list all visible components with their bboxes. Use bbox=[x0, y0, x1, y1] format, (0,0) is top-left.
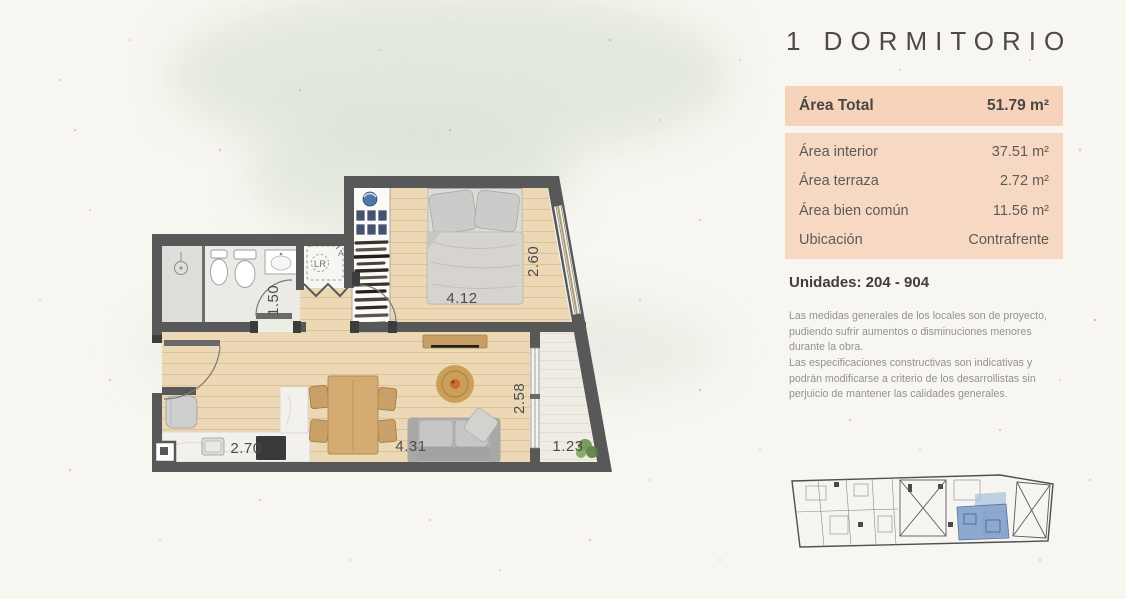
dim-living-width: 4.31 bbox=[395, 438, 426, 455]
bidet bbox=[211, 250, 228, 285]
area-row-value: Contrafrente bbox=[968, 232, 1049, 248]
area-row: Área bien común 11.56 m² bbox=[799, 203, 1049, 219]
area-row-label: Área terraza bbox=[799, 173, 879, 189]
key-plan bbox=[788, 472, 1060, 573]
area-row: Área terraza 2.72 m² bbox=[799, 173, 1049, 189]
disclaimer-text: Las medidas generales de los locales son… bbox=[789, 309, 1052, 403]
shaft-label: A bbox=[338, 248, 344, 258]
area-total-value: 51.79 m² bbox=[987, 97, 1049, 115]
disclaimer-line: Las medidas generales de los locales son… bbox=[789, 309, 1052, 356]
dim-bed-width: 4.12 bbox=[446, 290, 477, 307]
dim-living-depth: 2.58 bbox=[511, 383, 528, 414]
dim-bed-depth: 2.60 bbox=[525, 246, 542, 277]
floor-plan: LR A bbox=[138, 158, 622, 485]
dining-table bbox=[328, 376, 378, 454]
laundry-label: LR bbox=[314, 259, 326, 270]
content: 1 DORMITORIO Área Total 51.79 m² Área in… bbox=[0, 0, 1126, 599]
units-label: Unidades: 204 - 904 bbox=[789, 274, 929, 291]
bathroom-sink bbox=[265, 250, 297, 274]
terrace-sliding-door bbox=[530, 348, 540, 448]
rug bbox=[436, 365, 474, 403]
corner-shaft-box bbox=[155, 442, 175, 462]
area-total-label: Área Total bbox=[799, 97, 874, 115]
area-total-box: Área Total 51.79 m² bbox=[785, 86, 1063, 126]
toilet bbox=[234, 250, 256, 288]
kitchen-sink bbox=[202, 438, 224, 455]
shower-partition bbox=[202, 246, 205, 322]
dim-bath-width: 1.50 bbox=[265, 285, 282, 316]
hallway-floor bbox=[300, 288, 352, 332]
area-row: Área interior 37.51 m² bbox=[799, 144, 1049, 160]
area-row-label: Área bien común bbox=[799, 203, 909, 219]
shower-floor bbox=[162, 246, 203, 322]
page-title: 1 DORMITORIO bbox=[786, 26, 1072, 57]
dim-kitchen-width: 2.70 bbox=[230, 440, 261, 457]
dim-terrace-width: 1.23 bbox=[552, 438, 583, 455]
page: 1 DORMITORIO Área Total 51.79 m² Área in… bbox=[0, 0, 1126, 599]
bed bbox=[427, 184, 523, 304]
area-row-value: 2.72 m² bbox=[1000, 173, 1049, 189]
tv-console bbox=[423, 335, 487, 348]
area-row-label: Ubicación bbox=[799, 232, 863, 248]
area-detail-box: Área interior 37.51 m² Área terraza 2.72… bbox=[785, 133, 1063, 259]
area-row-label: Área interior bbox=[799, 144, 878, 160]
area-row-value: 37.51 m² bbox=[992, 144, 1049, 160]
area-row-value: 11.56 m² bbox=[993, 203, 1049, 219]
area-row: Ubicación Contrafrente bbox=[799, 232, 1049, 248]
wardrobe bbox=[352, 184, 390, 332]
disclaimer-line: Las especificaciones constructivas son i… bbox=[789, 356, 1052, 403]
fridge bbox=[166, 396, 197, 428]
